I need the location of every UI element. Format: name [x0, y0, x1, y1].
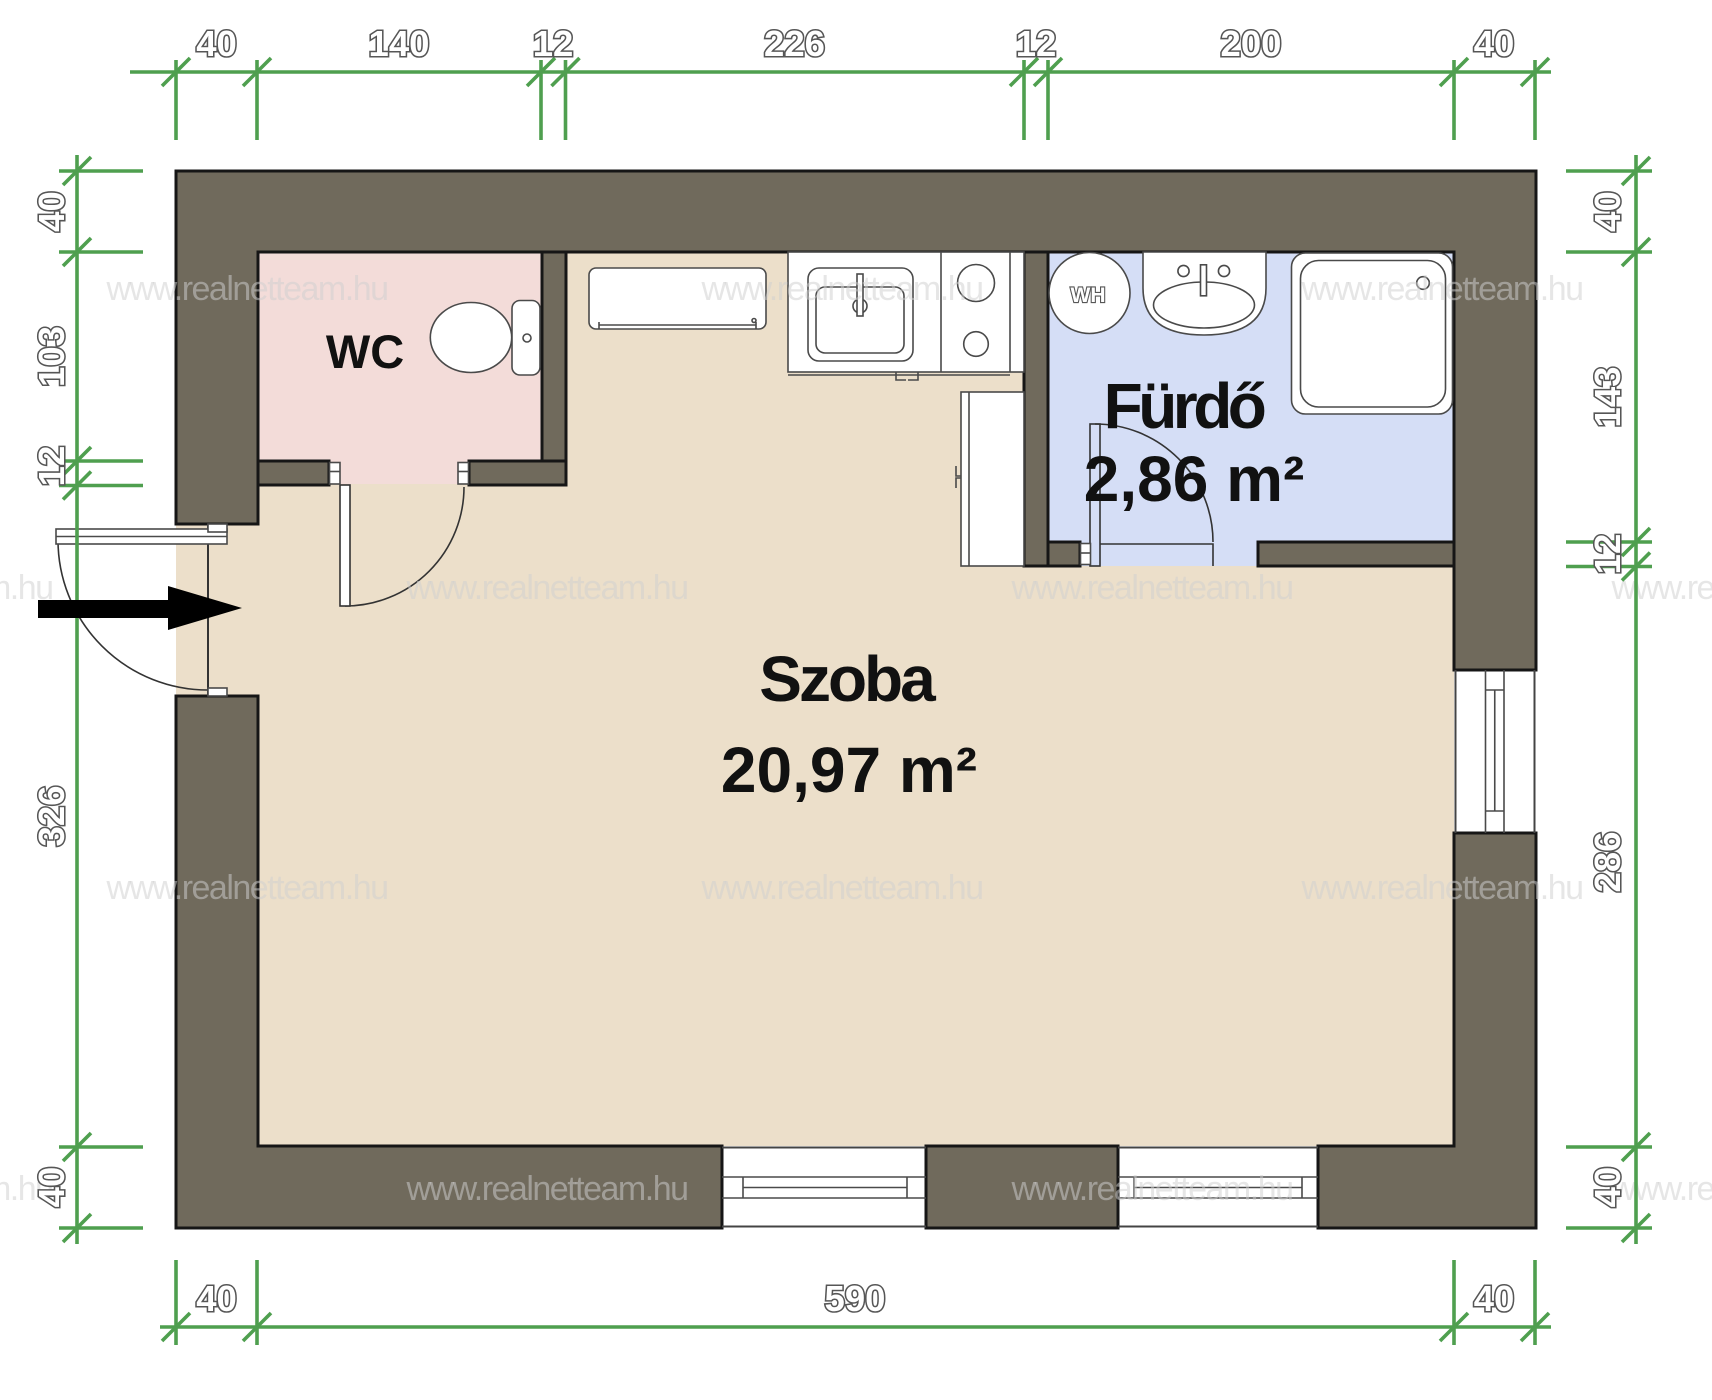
- svg-text:140: 140: [369, 23, 430, 64]
- svg-text:326: 326: [31, 786, 72, 847]
- svg-text:12: 12: [533, 23, 574, 64]
- svg-text:www.realnetteam.hu: www.realnetteam.hu: [105, 270, 387, 308]
- svg-text:www.realnetteam.hu: www.realnetteam.hu: [700, 869, 982, 907]
- svg-text:143: 143: [1587, 367, 1628, 428]
- svg-text:40: 40: [196, 23, 237, 64]
- svg-text:WH: WH: [1071, 284, 1106, 307]
- svg-text:www.realnetteam.hu: www.realnetteam.hu: [405, 569, 687, 607]
- svg-text:www.realnetteam.hu: www.realnetteam.hu: [1300, 869, 1582, 907]
- svg-text:200: 200: [1221, 23, 1282, 64]
- svg-text:286: 286: [1587, 832, 1628, 893]
- svg-text:www.realnetteam.hu: www.realnetteam.hu: [1010, 1170, 1292, 1208]
- svg-text:590: 590: [825, 1278, 886, 1319]
- svg-text:12: 12: [1587, 534, 1628, 575]
- svg-text:40: 40: [1474, 23, 1515, 64]
- svg-text:40: 40: [1587, 1167, 1628, 1208]
- svg-text:40: 40: [196, 1278, 237, 1319]
- svg-text:www.realnetteam.hu: www.realnetteam.hu: [700, 270, 982, 308]
- svg-text:WC: WC: [326, 325, 404, 378]
- svg-text:103: 103: [31, 326, 72, 387]
- svg-text:40: 40: [1587, 191, 1628, 232]
- svg-text:12: 12: [1016, 23, 1057, 64]
- svg-text:2,86 m²: 2,86 m²: [1084, 443, 1305, 515]
- svg-text:Fürdő: Fürdő: [1104, 370, 1265, 442]
- svg-text:40: 40: [31, 191, 72, 232]
- svg-text:www.realnetteam.hu: www.realnetteam.hu: [105, 869, 387, 907]
- svg-text:www.realnetteam.hu: www.realnetteam.hu: [1010, 569, 1292, 607]
- svg-text:20,97 m²: 20,97 m²: [721, 734, 977, 806]
- svg-text:226: 226: [764, 23, 825, 64]
- svg-text:12: 12: [31, 446, 72, 487]
- svg-text:40: 40: [1474, 1278, 1515, 1319]
- svg-text:www.realnetteam.hu: www.realnetteam.hu: [1300, 270, 1582, 308]
- svg-text:Szoba: Szoba: [759, 643, 936, 715]
- svg-text:40: 40: [31, 1167, 72, 1208]
- svg-text:www.realnetteam.hu: www.realnetteam.hu: [405, 1170, 687, 1208]
